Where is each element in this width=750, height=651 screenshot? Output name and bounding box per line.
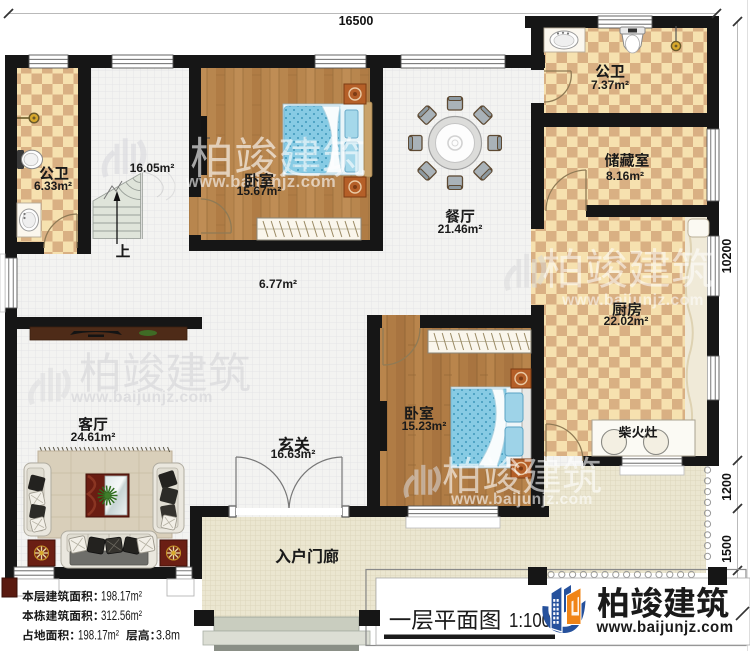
svg-text:6.33m²: 6.33m²	[34, 179, 72, 193]
svg-text:8.16m²: 8.16m²	[606, 169, 644, 183]
svg-text:15.23m²: 15.23m²	[402, 419, 447, 433]
svg-text:10200: 10200	[720, 239, 734, 274]
svg-text:198.17m²: 198.17m²	[101, 588, 142, 604]
svg-text:15.67m²: 15.67m²	[237, 184, 282, 198]
svg-text:24.61m²: 24.61m²	[71, 430, 116, 444]
svg-text:312.56m²: 312.56m²	[101, 607, 142, 623]
svg-text:198.17m²: 198.17m²	[78, 627, 119, 643]
svg-text:16.63m²: 16.63m²	[271, 447, 316, 461]
svg-text:21.46m²: 21.46m²	[438, 222, 483, 236]
svg-text:www.baijunjz.com: www.baijunjz.com	[450, 491, 593, 508]
svg-text:www.baijunjz.com: www.baijunjz.com	[596, 619, 734, 636]
svg-text:22.02m²: 22.02m²	[604, 314, 649, 328]
svg-text:16500: 16500	[339, 14, 374, 28]
svg-text:www.baijunjz.com: www.baijunjz.com	[70, 389, 213, 406]
svg-text:1500: 1500	[720, 535, 734, 563]
svg-text:16.05m²: 16.05m²	[130, 161, 175, 175]
svg-text:7.37m²: 7.37m²	[591, 78, 629, 92]
svg-text:6.77m²: 6.77m²	[259, 277, 297, 291]
svg-text:3.8m: 3.8m	[156, 627, 180, 643]
svg-text:1200: 1200	[720, 473, 734, 501]
